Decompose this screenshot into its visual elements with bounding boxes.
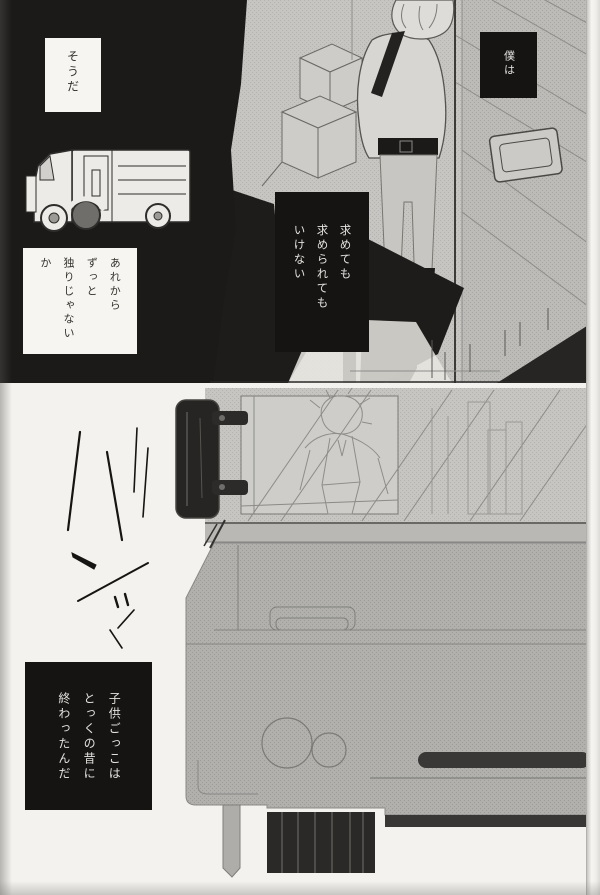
door-slot-icon (489, 128, 563, 183)
bottom-panel-art (0, 388, 600, 895)
machine-dark-band-lower (385, 815, 590, 827)
bottom-panel: 子供ごっこは とっくの昔に 終わったんだ (0, 388, 600, 895)
machine-dark-band (418, 752, 590, 768)
speech-box-arekara: あれから ずっと 独りじゃないか (23, 248, 137, 354)
caption-text-motomete: 求めても 求められても いけない (288, 224, 357, 352)
caption-box-motomete: 求めても 求められても いけない (275, 192, 369, 352)
machine-underparts (223, 805, 590, 877)
machine-body-icon (186, 543, 590, 815)
caption-box-kodomo: 子供ごっこは とっくの昔に 終わったんだ (25, 662, 152, 810)
caption-box-bokuwa: 僕は (480, 32, 537, 98)
truck-icon (26, 150, 190, 231)
caption-text-bokuwa: 僕は (501, 50, 517, 98)
caption-text-kodomo: 子供ごっこは とっくの昔に 終わったんだ (51, 692, 127, 810)
speech-text-soda: そうだ (65, 50, 82, 112)
speech-text-arekara: あれから ずっと 独りじゃないか (34, 257, 126, 354)
speech-box-soda: そうだ (45, 38, 101, 112)
top-panel: そうだ あれから ずっと 独りじゃないか 僕は 求めても 求められても いけない (0, 0, 600, 383)
glass-window-area (205, 388, 590, 542)
ink-strokes (68, 428, 148, 648)
manga-page: そうだ あれから ずっと 独りじゃないか 僕は 求めても 求められても いけない (0, 0, 600, 895)
